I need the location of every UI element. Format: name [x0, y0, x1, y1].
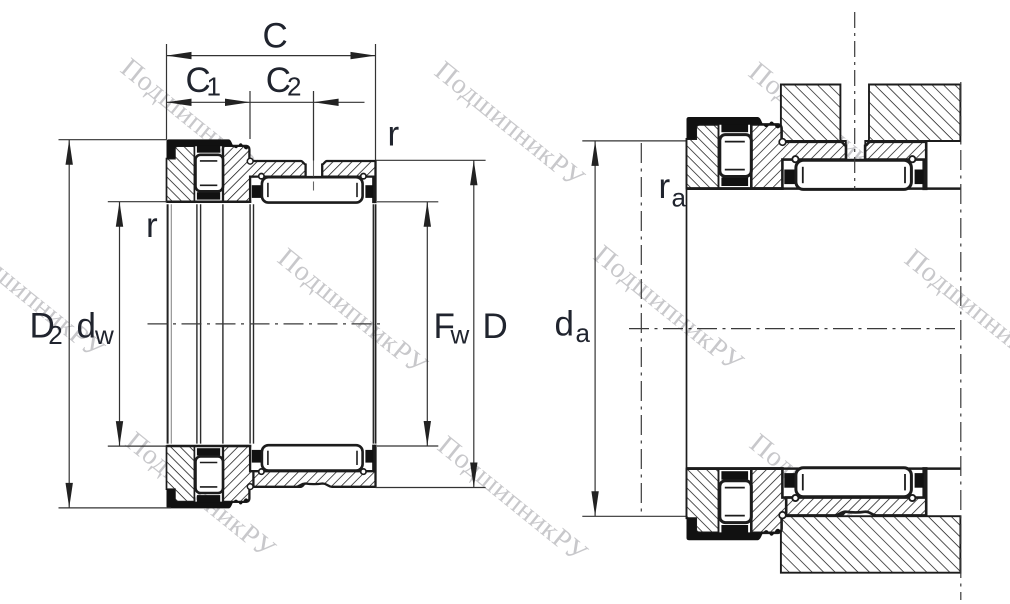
svg-text:a: a: [672, 183, 687, 213]
svg-text:r: r: [388, 114, 400, 153]
svg-text:2: 2: [48, 320, 62, 350]
svg-text:w: w: [94, 320, 114, 350]
svg-text:2: 2: [287, 72, 301, 102]
svg-text:d: d: [77, 306, 96, 345]
svg-text:D: D: [483, 307, 508, 346]
svg-text:1: 1: [207, 72, 221, 102]
svg-text:r: r: [659, 167, 671, 206]
svg-text:a: a: [576, 318, 591, 348]
svg-text:C: C: [263, 17, 288, 56]
svg-text:r: r: [146, 206, 158, 245]
svg-text:w: w: [450, 320, 470, 350]
svg-text:d: d: [555, 305, 574, 344]
